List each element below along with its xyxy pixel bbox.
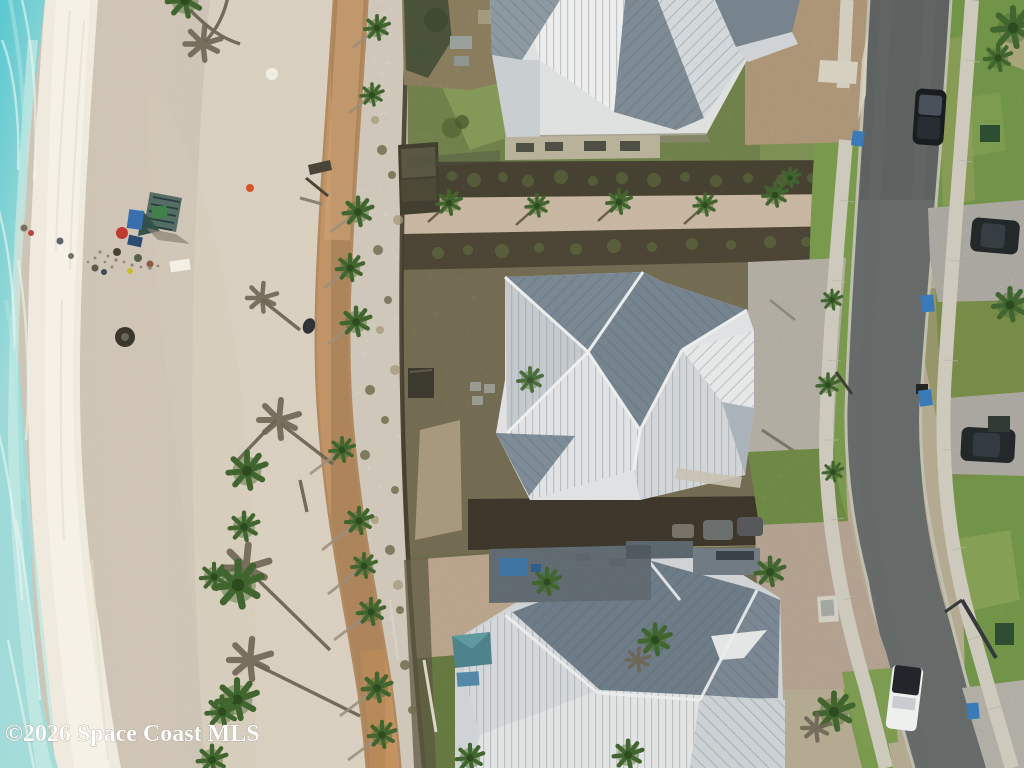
svg-text:©2026 Space Coast MLS: ©2026 Space Coast MLS [5,721,260,747]
